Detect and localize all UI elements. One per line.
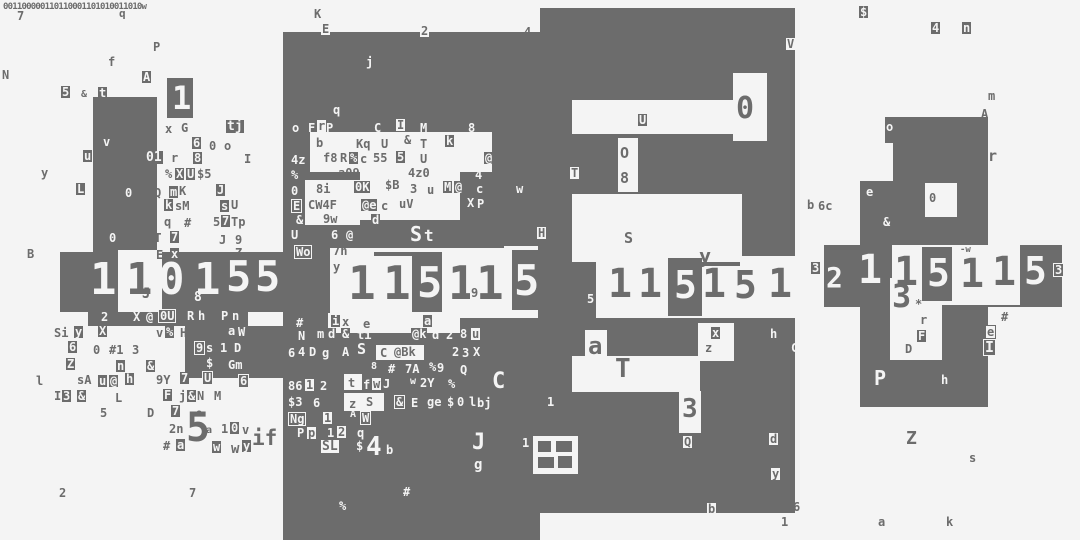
glyph: j [179, 390, 186, 402]
glyph: % [447, 378, 456, 390]
glyph: L [76, 183, 85, 195]
glyph: & [296, 214, 303, 226]
glyph: 3 [810, 261, 821, 275]
glyph: W [238, 326, 245, 338]
glyph: @e [361, 199, 377, 211]
glyph: % [165, 326, 174, 338]
glyph: L [115, 392, 122, 404]
glyph: x [711, 327, 720, 339]
glyph: E [321, 23, 330, 35]
glyph: r [341, 138, 348, 150]
glyph: 8i [316, 183, 330, 195]
glyph: 5T [147, 232, 161, 244]
glyph: 2 [320, 380, 327, 392]
glyph: d [371, 214, 380, 226]
glyph: k [946, 516, 953, 528]
glyph: n [231, 310, 240, 322]
glyph: d [327, 328, 336, 340]
glyph: y [332, 261, 341, 273]
glyph: $ [356, 440, 363, 452]
glyph: @ [345, 229, 354, 241]
glyph: 7 [170, 231, 179, 243]
glyph: b [707, 503, 716, 515]
glyph: y [41, 167, 48, 179]
glyph: V [786, 38, 795, 50]
glyph: 4 [475, 169, 482, 181]
glitch-canvas: 001100000110110001101010011010w7qKE24PfN… [0, 0, 1080, 540]
glyph: m [988, 90, 995, 102]
dark-region-block [885, 117, 988, 143]
glyph: #1 [109, 344, 123, 356]
glyph: 7A [405, 363, 419, 375]
glyph: c [476, 183, 483, 195]
glyph: @ [484, 152, 493, 164]
glyph: 0K [354, 181, 370, 193]
glyph: @k [411, 328, 427, 340]
glyph: o [292, 122, 299, 134]
glyph: 1 [608, 264, 632, 304]
glyph: 7h [333, 245, 347, 257]
glyph: 1 [702, 264, 726, 304]
dark-region-block [538, 457, 554, 468]
glyph: 5 [927, 254, 950, 292]
light-region-block [572, 100, 742, 134]
glyph: q [333, 104, 340, 116]
glyph: # [163, 440, 170, 452]
glyph: 1 [547, 396, 554, 408]
glyph: Q [154, 187, 161, 199]
glyph: t [98, 87, 107, 99]
glyph: Q [683, 436, 692, 448]
glyph: 1 [992, 252, 1016, 292]
glyph: J [142, 287, 150, 301]
glyph: N [2, 69, 9, 81]
dark-region-block [860, 181, 988, 245]
glyph: q [357, 427, 364, 439]
glyph: & [404, 134, 411, 146]
glyph: A [981, 108, 988, 120]
glyph: 9Y [156, 374, 170, 386]
glyph: P [221, 310, 228, 322]
glyph: y [771, 468, 780, 480]
glyph: @ [109, 375, 118, 387]
glyph: Kq [356, 138, 370, 150]
glyph: R [340, 152, 347, 164]
glyph: h [770, 328, 777, 340]
glyph: 6c [818, 200, 832, 212]
glyph: 8 [371, 362, 377, 372]
glyph: K [179, 185, 186, 197]
glyph: I [54, 390, 61, 402]
glyph: I$ [445, 316, 459, 328]
glyph: 8 [194, 291, 202, 304]
glyph: J [472, 432, 485, 454]
glyph: N [298, 330, 305, 342]
glyph: 4 [297, 346, 306, 358]
glyph: s [220, 200, 229, 212]
glyph: 6 [68, 341, 77, 353]
glyph: 6 [313, 397, 320, 409]
glyph: X [98, 325, 107, 337]
glyph: A [341, 346, 350, 358]
glyph: d [432, 329, 439, 341]
glyph: & [883, 216, 890, 228]
glyph: & [146, 360, 155, 372]
glyph: 6 [238, 374, 249, 388]
glyph: if [252, 428, 277, 449]
glyph: Hl [180, 327, 194, 339]
glyph: n [116, 360, 125, 372]
glyph: c [360, 153, 367, 165]
glyph: q [164, 216, 171, 228]
glyph: a [227, 325, 236, 337]
dark-region-block [558, 456, 572, 468]
glyph: E [411, 397, 418, 409]
glyph: e [985, 325, 996, 339]
glyph: J [383, 378, 390, 390]
glyph: 0 [209, 140, 216, 152]
glyph: U [231, 199, 238, 211]
glyph: 0 [456, 396, 465, 408]
glyph: 55 [373, 152, 387, 164]
glyph: 4z0 [408, 167, 430, 179]
glyph: 1 [327, 427, 334, 439]
glyph: 1 [476, 260, 504, 306]
glyph: 5 [674, 266, 697, 304]
glyph: U [291, 229, 298, 241]
glyph: a [878, 516, 885, 528]
glyph: 3 [62, 390, 71, 402]
glyph: # [388, 363, 395, 375]
glyph: g [321, 347, 330, 359]
glyph: 5 [213, 216, 220, 228]
glyph: P [153, 41, 160, 53]
glyph: 6 [330, 229, 339, 241]
glyph: 9 [194, 341, 205, 355]
glyph: 9 [470, 287, 479, 299]
glyph: K [314, 8, 321, 20]
glyph: C [380, 347, 387, 359]
glyph: & [77, 390, 86, 402]
glyph: u [427, 184, 434, 196]
glyph: 1 [858, 250, 882, 290]
glyph: 1 [781, 516, 788, 528]
glyph: u [98, 375, 107, 387]
glyph: e [866, 186, 873, 198]
glyph: m [169, 186, 178, 198]
glyph: 7 [171, 405, 180, 417]
glyph: o [224, 140, 231, 152]
glyph: ge [426, 396, 442, 408]
glyph: P [326, 122, 333, 134]
glyph: r [920, 314, 927, 326]
glyph: T [615, 356, 631, 382]
glyph: J [219, 234, 226, 246]
glyph: s [969, 452, 976, 464]
glyph: 7 [189, 487, 196, 499]
glyph: 3 [132, 344, 139, 356]
glyph: 01 [145, 151, 163, 164]
glyph: 5 [255, 256, 280, 298]
glyph: l [36, 375, 43, 387]
glyph: J [216, 184, 225, 196]
glyph: 7 [17, 10, 24, 22]
glyph: uV [399, 198, 413, 210]
glyph: x [165, 123, 172, 135]
glyph: n [962, 22, 971, 34]
glyph: f [108, 56, 115, 68]
glyph: 1 [172, 82, 191, 114]
glyph: Si [54, 327, 68, 339]
glyph: 0 [108, 232, 117, 244]
glyph: & [187, 390, 196, 402]
glyph: T [570, 167, 579, 179]
glyph: 2n [169, 423, 183, 435]
glyph: 2 [420, 25, 429, 37]
glyph: 1 [348, 260, 376, 306]
glyph: p [307, 427, 316, 439]
glyph: a09 [338, 167, 360, 179]
glyph: CW4F [308, 199, 337, 211]
glyph: I [244, 153, 251, 165]
glyph: f [363, 379, 370, 391]
glyph: $ [447, 396, 454, 408]
light-region-block [572, 194, 742, 262]
glyph: a [176, 439, 185, 451]
glyph: 9w [323, 213, 337, 225]
glyph: 1 [522, 437, 529, 449]
glyph: M [420, 122, 427, 134]
glyph: 3 [1053, 263, 1064, 277]
glyph: 0 [125, 187, 132, 199]
glyph: j [366, 56, 373, 68]
glyph: 4 [524, 26, 531, 38]
glyph: v [242, 424, 249, 436]
glyph: 0U [158, 309, 176, 323]
glyph: b [386, 444, 393, 456]
glyph: U [420, 153, 427, 165]
glyph: % [428, 361, 437, 373]
glyph: C [791, 342, 798, 354]
glyph: f8 [323, 152, 337, 164]
glyph: SL [321, 440, 339, 453]
glyph: X [466, 197, 475, 209]
glyph: B [27, 248, 34, 260]
glyph: h [197, 310, 206, 322]
glyph: % [164, 168, 173, 180]
glyph: tj [226, 120, 244, 133]
glyph: r [317, 120, 326, 132]
glyph: Q [460, 364, 467, 376]
glyph: Tp [231, 216, 245, 228]
glyph: g [474, 458, 482, 472]
glyph: u [470, 327, 481, 341]
glyph: 5 [100, 407, 107, 419]
glyph: U [381, 138, 388, 150]
glyph: 4 [366, 434, 382, 460]
glyph: q [119, 8, 126, 19]
glyph: W [360, 411, 371, 425]
glyph: 0 [158, 258, 185, 302]
glyph: v [156, 327, 163, 339]
glyph: 5 [514, 260, 539, 302]
glyph: 8 [460, 328, 467, 340]
glyph: r [170, 152, 179, 164]
glyph: sA [77, 374, 91, 386]
glyph: 1 [323, 412, 332, 424]
glyph: 5 [417, 262, 442, 304]
glyph: 1 [305, 379, 314, 391]
glyph: 1 [475, 152, 482, 164]
glyph: P [297, 427, 304, 439]
glyph: d [768, 432, 779, 446]
glyph: sM [175, 200, 189, 212]
glyph: D [147, 407, 154, 419]
glyph: P [477, 198, 484, 210]
glyph: & [81, 90, 87, 100]
glyph: 0 [291, 185, 298, 197]
glyph: 5 [396, 151, 405, 163]
glyph: H [536, 226, 547, 240]
glyph: & [394, 395, 405, 409]
glyph: h [941, 374, 948, 386]
glyph: 0 [736, 94, 754, 124]
glyph: w [231, 442, 239, 456]
glyph: % [349, 152, 358, 164]
glyph: D [234, 342, 241, 354]
glyph: RL [203, 327, 217, 339]
glyph: bj [477, 397, 491, 409]
glyph: $3 [288, 396, 302, 408]
glyph: 1 [768, 264, 792, 304]
glyph: i [331, 315, 340, 327]
glyph: 2 [101, 311, 108, 323]
glyph: 1 [220, 342, 227, 354]
glyph: # [184, 217, 191, 229]
glyph: I [396, 119, 405, 131]
glyph: P [874, 368, 886, 388]
glyph: # [1001, 311, 1008, 323]
glyph: k [445, 135, 454, 147]
glyph: 0 [230, 422, 239, 434]
glyph: l [468, 396, 477, 408]
glyph: o [886, 121, 893, 133]
glyph: Ng [288, 412, 306, 426]
glyph: a [206, 426, 212, 436]
glyph: 2 [826, 264, 843, 292]
glyph: t [424, 228, 434, 244]
glyph: 6 [192, 137, 201, 149]
glyph: 9 [235, 234, 242, 246]
glyph: 1 [90, 258, 117, 302]
glyph: 5 [734, 266, 757, 304]
glyph: E [291, 199, 302, 213]
glyph: $5 [197, 168, 211, 180]
glyph: U [637, 113, 648, 127]
glyph: # [296, 317, 303, 329]
glyph: v [103, 136, 110, 148]
glyph: a [588, 334, 602, 358]
glyph: 1 [960, 254, 984, 294]
glyph: 7 [180, 372, 189, 384]
glyph: r [988, 149, 997, 164]
glyph: c [381, 200, 388, 212]
glyph: X [472, 346, 481, 358]
glyph: N [197, 390, 204, 402]
glyph: 6 [793, 501, 800, 513]
glyph: F [163, 389, 172, 401]
glyph: M [443, 181, 452, 193]
glyph: U [202, 371, 213, 385]
glyph: b [806, 199, 815, 211]
glyph: G [181, 122, 188, 134]
glyph: 2 [59, 487, 66, 499]
glyph: D [905, 343, 912, 355]
glyph: 1 [383, 260, 411, 306]
glyph: 1 [638, 264, 662, 304]
glyph: 2Y [420, 377, 434, 389]
glyph: @ [146, 311, 153, 323]
glyph: t [348, 377, 355, 389]
glyph: Z [66, 358, 75, 370]
glyph: M [214, 390, 221, 402]
glyph: A [142, 71, 151, 83]
glyph: 5 [226, 256, 251, 298]
glyph: s [206, 342, 213, 354]
glyph: X [133, 311, 140, 323]
glyph: w [372, 378, 381, 390]
glyph: X [175, 168, 184, 180]
glyph: y [242, 440, 251, 452]
glyph: w [516, 183, 523, 195]
glyph: 8 [193, 152, 202, 164]
glyph: 8 [620, 171, 629, 186]
glyph: S [410, 224, 422, 244]
glyph: 3 [892, 280, 911, 312]
glyph: 8 [468, 122, 475, 134]
glyph: T [420, 138, 427, 150]
glyph: A [350, 410, 356, 420]
glyph: R [187, 310, 194, 322]
glyph: 6 [288, 347, 295, 359]
glyph: * [915, 298, 922, 310]
glyph: F [308, 122, 315, 134]
glyph: U [186, 168, 195, 180]
glyph: w [212, 441, 221, 453]
glyph: 4 [931, 22, 940, 34]
glyph: S [357, 342, 366, 357]
glyph: S [366, 396, 373, 408]
glyph: 9 [437, 362, 444, 374]
glyph: % [291, 169, 298, 181]
glyph: C [374, 122, 381, 134]
glyph: z [705, 342, 712, 354]
glyph: w [410, 377, 416, 387]
dark-region-block [556, 441, 572, 452]
glyph: k [164, 199, 173, 211]
glyph: $ [206, 357, 213, 369]
glyph: 5 [60, 85, 71, 99]
glyph: 2 [451, 346, 460, 358]
glyph: Z [906, 430, 917, 448]
glyph: $B [385, 179, 399, 191]
glyph: 7 [221, 215, 230, 227]
glyph: C [492, 371, 505, 393]
glyph: D [308, 346, 317, 358]
glyph: 2 [337, 426, 346, 438]
glyph: 3 [410, 183, 417, 195]
dark-region-block [893, 143, 988, 181]
